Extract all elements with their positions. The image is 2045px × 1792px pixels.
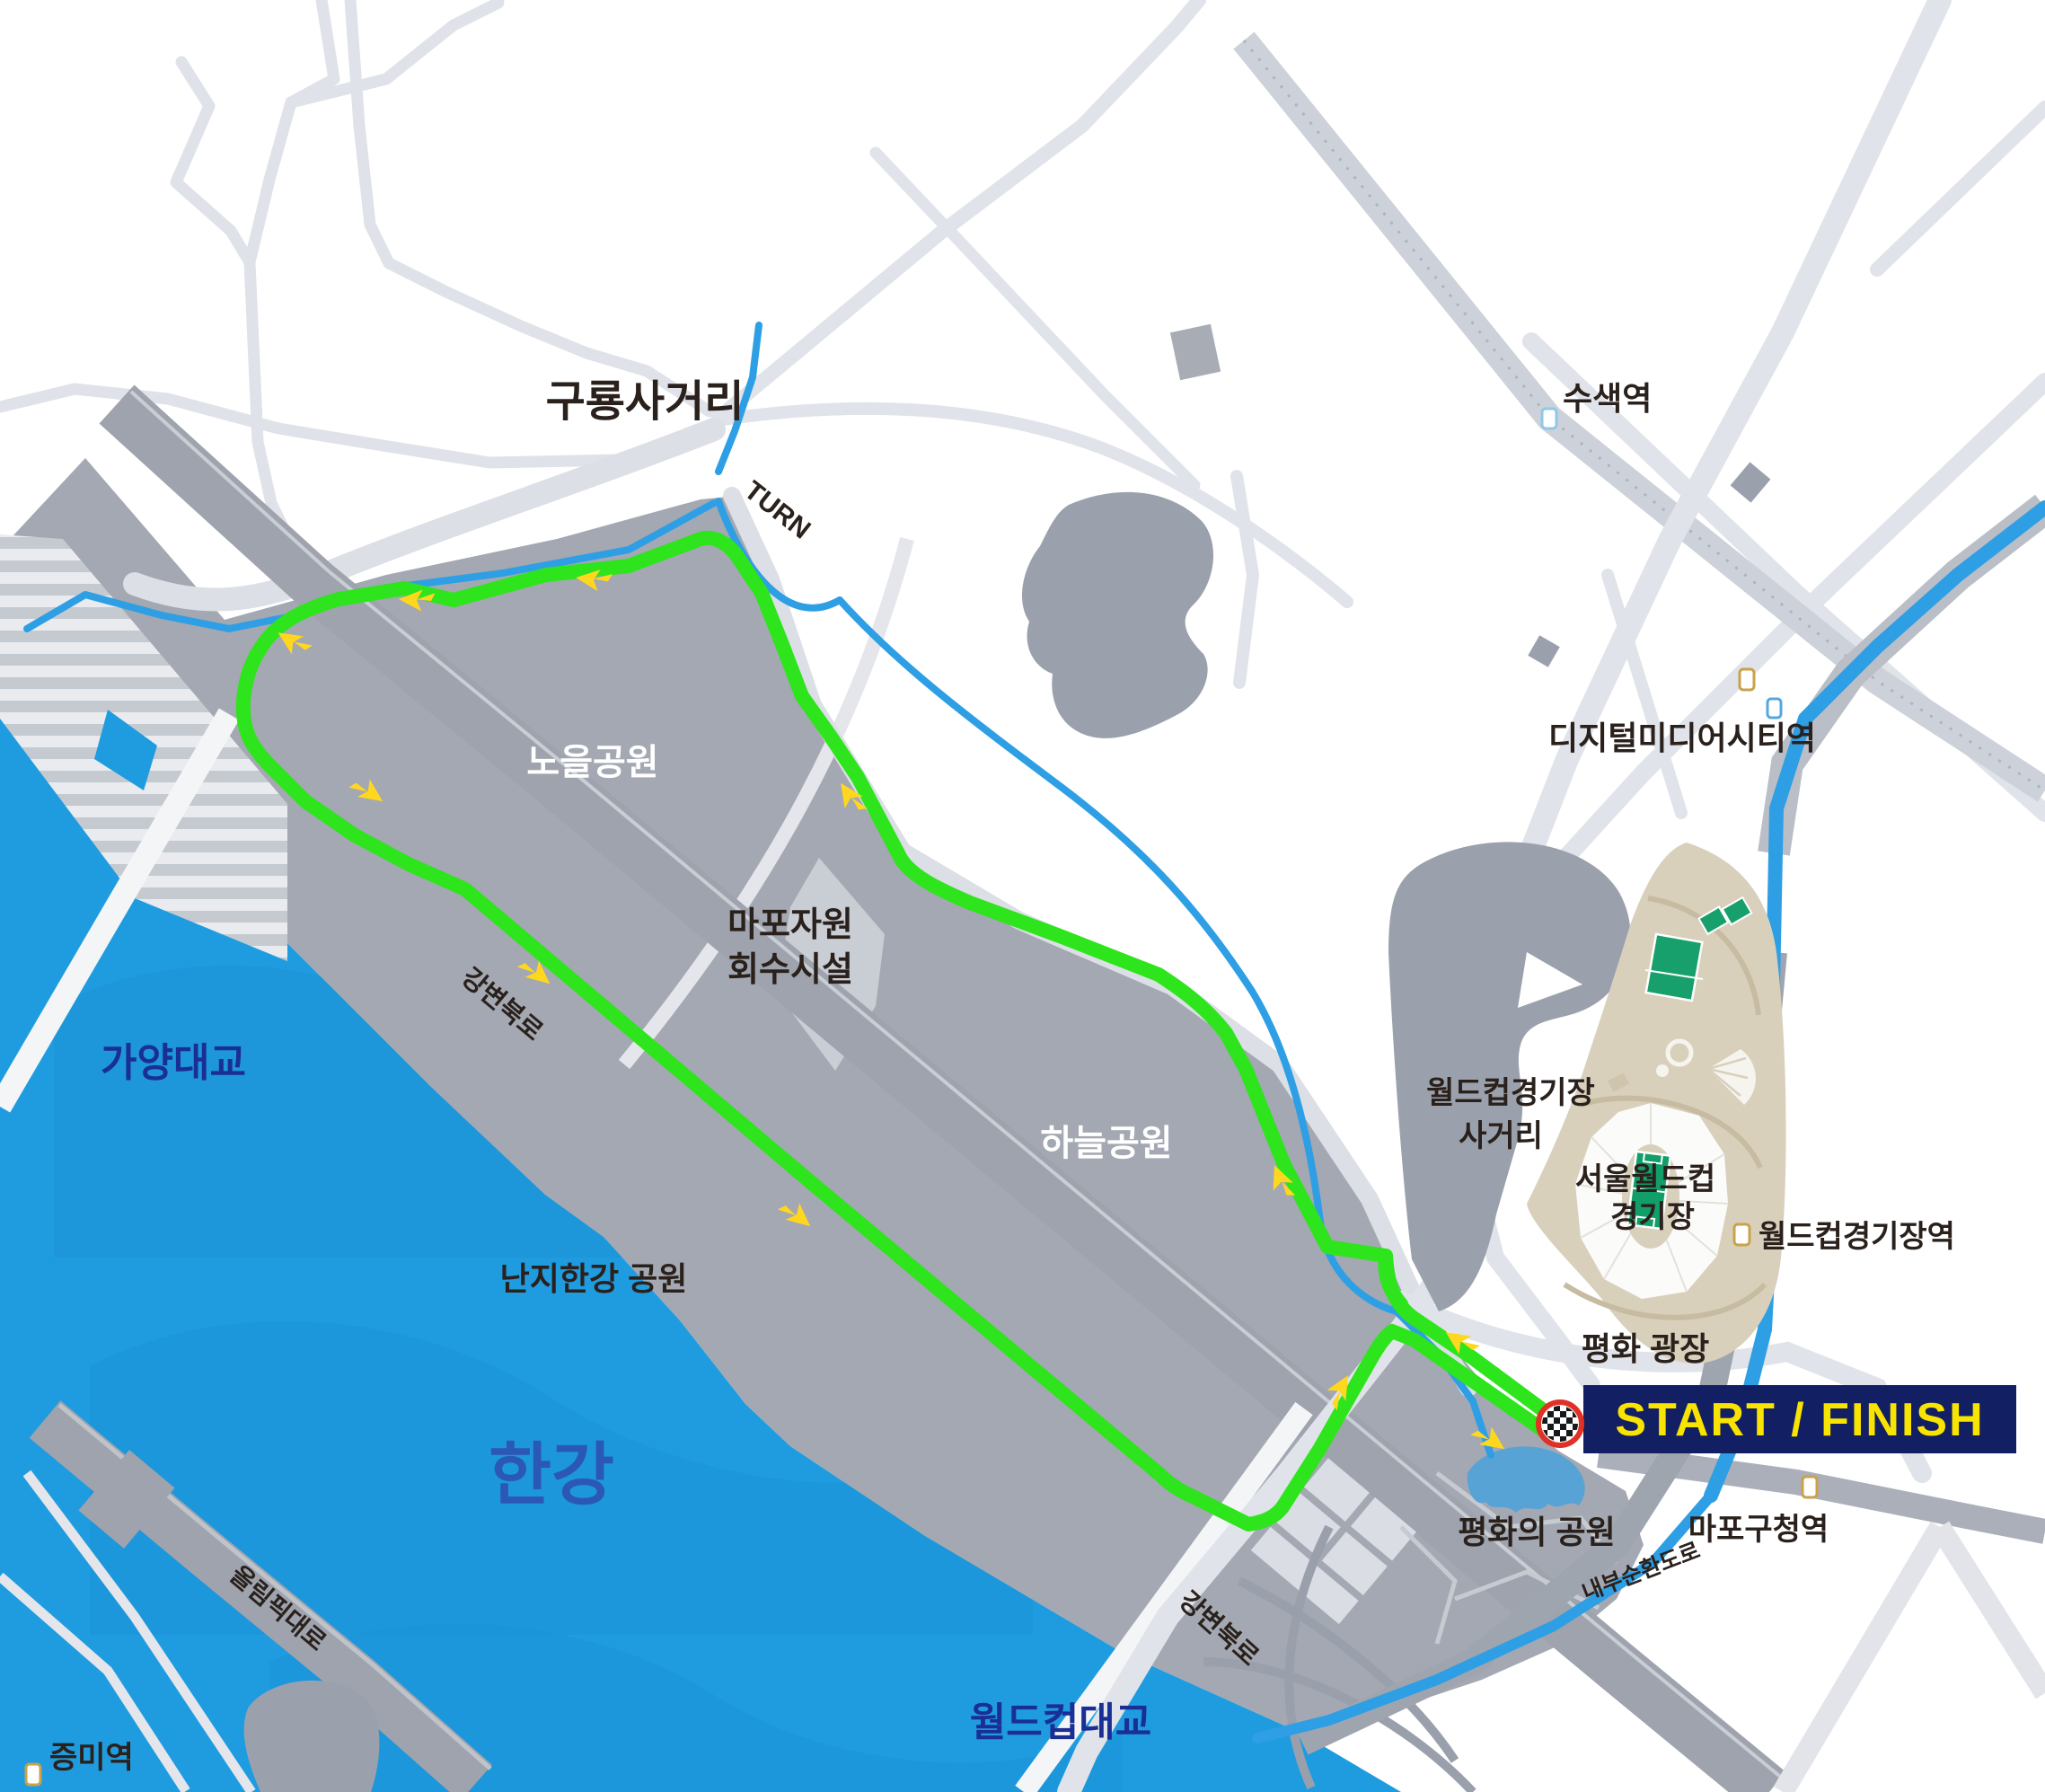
- start-finish-label: START / FINISH: [1615, 1394, 1984, 1446]
- nanji-park-label: 난지한강 공원: [500, 1260, 688, 1297]
- pyeonghwa-park-label: 평화의 공원: [1458, 1514, 1616, 1550]
- start-finish-group: START / FINISH: [1538, 1385, 2016, 1453]
- mapo-gu-station-label: 마포구청역: [1688, 1513, 1829, 1547]
- seoul-wc-stadium-label-line1: 서울월드컵: [1575, 1162, 1715, 1196]
- course-map: 구룡사거리 TURN 수색역 디지털미디어시티역 노을공원 마포자원 회수시설 …: [0, 0, 2045, 1792]
- start-finish-flag-icon: [1538, 1402, 1582, 1445]
- worldcup-bridge-label: 월드컵대교: [970, 1700, 1151, 1744]
- mapo-gu-station-icon: [1803, 1477, 1817, 1497]
- guryong-sageori-label: 구룡사거리: [546, 378, 745, 426]
- gayang-bridge-label: 가양대교: [101, 1041, 246, 1085]
- soccer-field: [1646, 934, 1703, 1001]
- wc-stadium-station-icon: [1734, 1224, 1750, 1245]
- mapo-facility-label-line1: 마포자원: [727, 906, 853, 944]
- dmc-station-icon-2: [1767, 699, 1781, 718]
- wc-stadium-station-label: 월드컵경기장역: [1759, 1220, 1955, 1254]
- hangang-label: 한강: [489, 1437, 614, 1514]
- dmc-station-icon-1: [1740, 669, 1754, 690]
- dmc-station-label: 디지털미디어시티역: [1548, 719, 1816, 756]
- susaek-station-icon: [1542, 409, 1556, 428]
- map-canvas: 구룡사거리 TURN 수색역 디지털미디어시티역 노을공원 마포자원 회수시설 …: [0, 0, 2045, 1792]
- seoul-wc-stadium-label-line2: 경기장: [1610, 1200, 1695, 1234]
- pyeonghwa-plaza-label: 평화 광장: [1582, 1330, 1709, 1367]
- susaek-station-label: 수색역: [1563, 380, 1652, 417]
- wc-sageori-label-line1: 월드컵경기장: [1426, 1076, 1595, 1110]
- jeungmi-station-label: 증미역: [49, 1741, 134, 1775]
- haneul-park-label: 하늘공원: [1040, 1124, 1172, 1163]
- wc-sageori-label-line2: 사거리: [1459, 1119, 1543, 1153]
- jeungmi-station-icon: [26, 1764, 40, 1785]
- noeul-park-label: 노을공원: [526, 743, 658, 782]
- mapo-facility-label-line2: 회수시설: [727, 951, 853, 989]
